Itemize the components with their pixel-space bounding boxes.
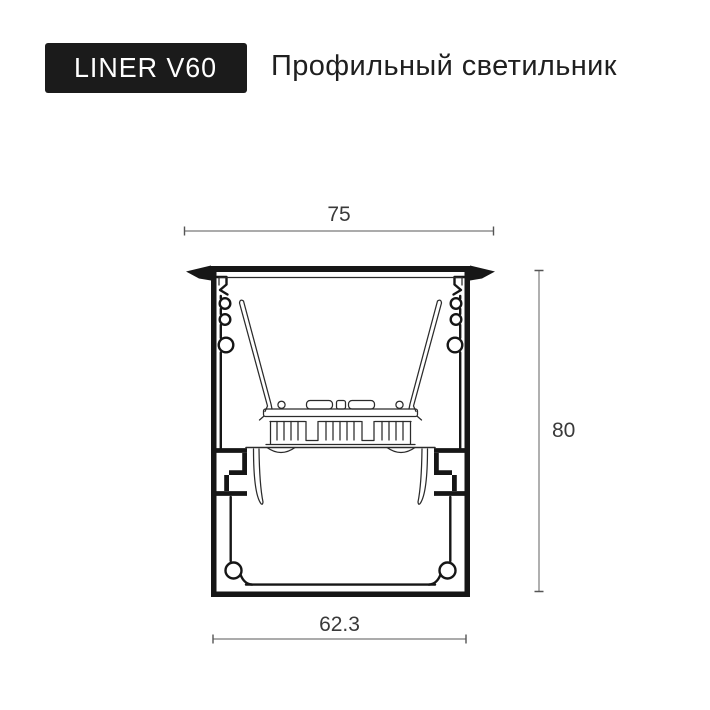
wall-right <box>465 266 471 597</box>
reflector-right <box>409 300 442 411</box>
driver-cavity <box>231 448 451 585</box>
mounting-slot-right <box>434 451 465 494</box>
led-module-left <box>307 401 333 410</box>
dimension-bottom-width: 62.3 <box>213 613 466 644</box>
serrations-right <box>448 277 465 449</box>
component-round-right <box>396 401 403 408</box>
dimension-top-width: 75 <box>185 203 494 236</box>
mounting-slot-left <box>216 451 247 494</box>
reflector-left <box>240 300 273 411</box>
led-pcb <box>260 409 422 420</box>
top-plate <box>211 266 470 272</box>
dimension-height: 80 <box>535 271 576 592</box>
hanger-hook-left <box>254 449 264 504</box>
serrations-left <box>217 277 234 449</box>
dimension-bottom-width-label: 62.3 <box>319 613 360 636</box>
wall-left <box>211 266 217 597</box>
bottom-plate <box>211 592 470 598</box>
led-module-right <box>349 401 375 410</box>
screw-boss-left <box>226 563 253 585</box>
top-lens-line <box>219 278 462 286</box>
pcb-components <box>278 401 403 410</box>
technical-drawing: 75 80 62.3 <box>0 0 710 710</box>
component-center <box>337 401 346 410</box>
hanger-hook-right <box>418 449 428 504</box>
dimension-height-label: 80 <box>552 419 575 442</box>
component-round-left <box>278 401 285 408</box>
page-root: LINER V60 Профильный светильник 75 80 62… <box>0 0 710 710</box>
flange-wing-right <box>470 266 495 281</box>
heatsink-comb <box>266 422 415 445</box>
screw-boss-right <box>429 563 456 585</box>
flange-wing-left <box>186 266 211 281</box>
dimension-top-width-label: 75 <box>327 203 350 226</box>
